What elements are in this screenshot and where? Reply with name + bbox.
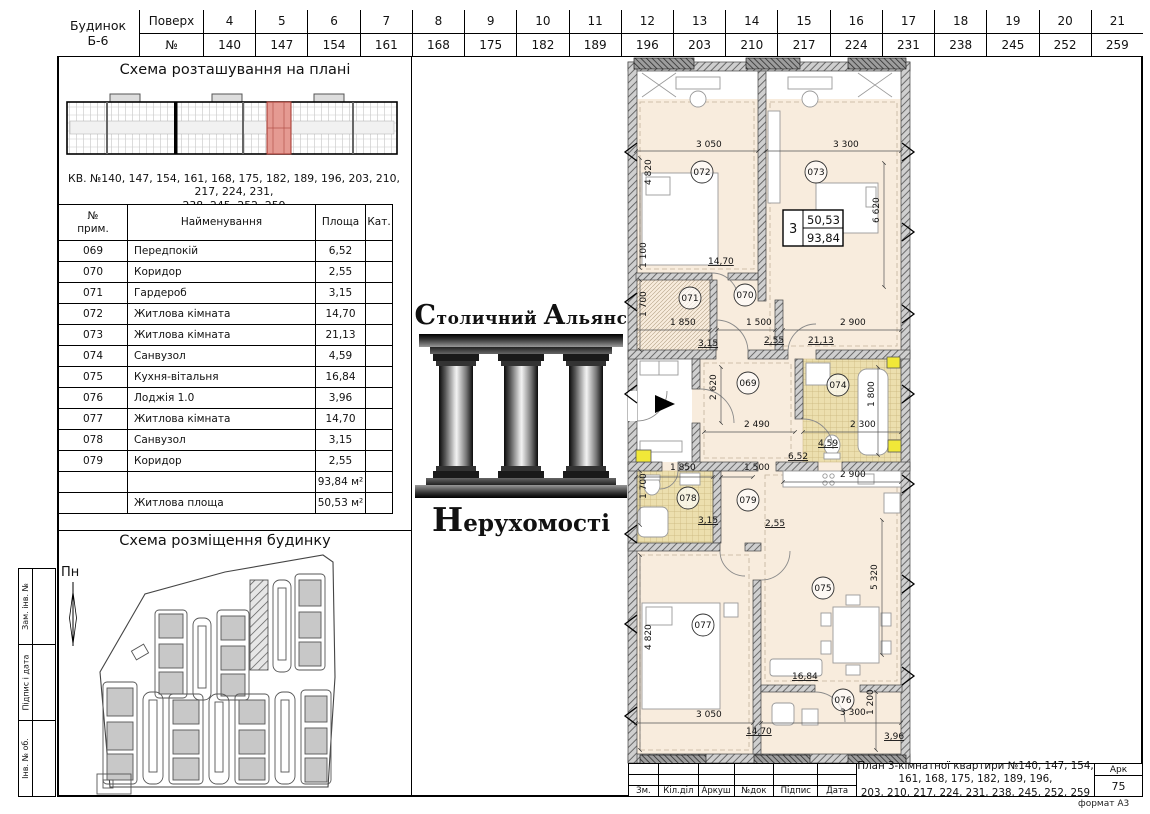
floor-value: 15 xyxy=(778,10,829,34)
floor-value: 12 xyxy=(622,10,673,34)
room-area: 3,96 xyxy=(316,388,366,409)
building-code: Б-6 xyxy=(87,33,108,48)
room-category xyxy=(366,262,393,283)
room-name: Кухня-вітальня xyxy=(128,367,316,388)
room-number-label: 071 xyxy=(681,294,698,304)
plan-dimension-label: 3 050 xyxy=(696,710,722,720)
room-number: 071 xyxy=(59,283,128,304)
room-row: 071 Гардероб 3,15 xyxy=(59,283,393,304)
room-row: 076 Лоджія 1.0 3,96 xyxy=(59,388,393,409)
floor-value: 6 xyxy=(308,10,359,34)
floor-value: 20 xyxy=(1040,10,1091,34)
apartment-number: 175 xyxy=(465,34,516,57)
apartment-number: 252 xyxy=(1040,34,1091,57)
room-area: 4,59 xyxy=(316,346,366,367)
apartment-number: 140 xyxy=(204,34,255,57)
floor-value: 21 xyxy=(1092,10,1143,34)
col-header-cat: Кат. xyxy=(366,205,393,241)
floors-columns: 4 140 5 147 6 154 7 161 8 168 xyxy=(204,10,1143,56)
room-category xyxy=(366,388,393,409)
number-header: № xyxy=(140,34,203,57)
room-number: 075 xyxy=(59,367,128,388)
room-number-label: 079 xyxy=(739,496,756,506)
plan-dimension-label: 4 820 xyxy=(644,159,654,185)
plan-dimension-label: 1 850 xyxy=(670,318,696,328)
plan-dimension-label: 1 500 xyxy=(746,318,772,328)
total-area-row: 93,84 м² xyxy=(59,472,393,493)
strip-cell: Підпис і дата xyxy=(19,645,55,721)
title-block: Зм. Кіл.діл Аркуш №док Підпис Дата План … xyxy=(628,763,1143,797)
floor-column: 8 168 xyxy=(413,10,465,56)
apartment-number: 224 xyxy=(831,34,882,57)
room-area: 6,52 xyxy=(316,241,366,262)
room-name: Санвузол xyxy=(128,346,316,367)
living-area-row: Житлова площа 50,53 м² xyxy=(59,493,393,514)
apartment-number: 168 xyxy=(413,34,464,57)
plan-dimension-label: 2 620 xyxy=(709,374,719,400)
floor-value: 17 xyxy=(883,10,934,34)
plan-dimension-label: 5 320 xyxy=(870,564,880,590)
plan-dimension-label: 1 850 xyxy=(670,463,696,473)
floor-value: 5 xyxy=(256,10,307,34)
room-number-label: 073 xyxy=(807,168,824,178)
sheet-number-cell: Арк 75 xyxy=(1095,764,1142,796)
site-scheme-title: Схема розміщення будинку xyxy=(70,533,380,549)
plan-dimension-label: 1 700 xyxy=(639,291,649,317)
apartments-note-line1: КВ. №140, 147, 154, 161, 168, 175, 182, … xyxy=(58,172,410,199)
floor-column: 5 147 xyxy=(256,10,308,56)
tb-col-label: Підпис xyxy=(774,786,817,796)
plan-area-label: 6,52 xyxy=(788,452,808,462)
apartment-number: 196 xyxy=(622,34,673,57)
apartment-number: 189 xyxy=(570,34,621,57)
room-name: Житлова кімната xyxy=(128,409,316,430)
floor-column: 9 175 xyxy=(465,10,517,56)
floor-column: 14 210 xyxy=(726,10,778,56)
plan-area-label: 16,84 xyxy=(792,672,818,682)
room-area: 21,13 xyxy=(316,325,366,346)
plan-dimension-label: 2 300 xyxy=(850,420,876,430)
strip-cell: Зам. інв. № xyxy=(19,569,55,645)
room-number: 078 xyxy=(59,430,128,451)
room-category xyxy=(366,430,393,451)
floor-value: 7 xyxy=(361,10,412,34)
room-area: 2,55 xyxy=(316,451,366,472)
logo-top-slab xyxy=(419,334,623,347)
room-number: 079 xyxy=(59,451,128,472)
apartment-number: 210 xyxy=(726,34,777,57)
apartment-number: 203 xyxy=(674,34,725,57)
sheet-header: Арк xyxy=(1095,764,1142,776)
strip-label: Підпис і дата xyxy=(21,655,30,711)
room-name: Лоджія 1.0 xyxy=(128,388,316,409)
room-category xyxy=(366,451,393,472)
drawing-title: План 3-кімнатної квартири №140, 147, 154… xyxy=(857,764,1095,796)
plan-dimension-label: 4 820 xyxy=(644,624,654,650)
apartment-floor-plan: 3 50,53 93,84 06907007107207307407507607… xyxy=(620,55,920,774)
room-number-label: 072 xyxy=(693,168,710,178)
room-row: 072 Житлова кімната 14,70 xyxy=(59,304,393,325)
apartment-info-badge: 3 50,53 93,84 xyxy=(783,210,843,246)
apartment-number: 245 xyxy=(987,34,1038,57)
plan-dimension-label: 3 300 xyxy=(833,140,859,150)
room-number-label: 078 xyxy=(679,494,696,504)
floor-column: 13 203 xyxy=(674,10,726,56)
plan-area-label: 3,96 xyxy=(884,732,904,742)
tb-col-label: Зм. xyxy=(629,786,658,796)
room-number-label: 075 xyxy=(814,584,831,594)
plan-dimension-label: 2 490 xyxy=(744,420,770,430)
floor-column: 6 154 xyxy=(308,10,360,56)
apartment-number: 217 xyxy=(778,34,829,57)
plan-dimension-label: 1 700 xyxy=(639,473,649,499)
floor-column: 18 238 xyxy=(935,10,987,56)
plan-dimension-label: 1 100 xyxy=(639,242,649,268)
plan-area-label: 3,15 xyxy=(698,339,718,349)
plan-area-label: 14,70 xyxy=(746,727,772,737)
strip-cell: Інв. № об. xyxy=(19,721,55,796)
room-number: 077 xyxy=(59,409,128,430)
total-area-value: 93,84 м² xyxy=(316,472,366,493)
floor-value: 10 xyxy=(517,10,568,34)
floor-header: Поверх xyxy=(140,10,203,34)
floor-column: 17 231 xyxy=(883,10,935,56)
living-area-value: 50,53 м² xyxy=(316,493,366,514)
floor-value: 8 xyxy=(413,10,464,34)
side-attribute-strip: Зам. інв. № Підпис і дата Інв. № об. xyxy=(18,568,56,797)
room-number-label: 076 xyxy=(834,696,851,706)
badge-living-area: 50,53 xyxy=(807,213,840,227)
room-row: 077 Житлова кімната 14,70 xyxy=(59,409,393,430)
strip-label: Інв. № об. xyxy=(21,738,30,779)
room-row: 074 Санвузол 4,59 xyxy=(59,346,393,367)
room-row: 078 Санвузол 3,15 xyxy=(59,430,393,451)
room-number-label: 074 xyxy=(829,381,846,391)
apartment-number: 154 xyxy=(308,34,359,57)
room-row: 079 Коридор 2,55 xyxy=(59,451,393,472)
tb-col-label: Кіл.діл xyxy=(659,786,698,796)
apartment-number: 182 xyxy=(517,34,568,57)
location-scheme-title: Схема розташування на плані xyxy=(60,62,410,78)
format-label: формат А3 xyxy=(1078,799,1129,809)
plan-area-label: 2,55 xyxy=(764,336,784,346)
room-row: 073 Житлова кімната 21,13 xyxy=(59,325,393,346)
logo-line2: Нерухомості xyxy=(413,500,629,539)
floor-column: 21 259 xyxy=(1092,10,1143,56)
logo-columns-icon xyxy=(433,354,609,478)
plan-dimension-label: 3 050 xyxy=(696,140,722,150)
room-name: Житлова кімната xyxy=(128,304,316,325)
room-name: Житлова кімната xyxy=(128,325,316,346)
tb-col-label: Аркуш xyxy=(699,786,734,796)
logo-bottom-slab xyxy=(415,485,627,498)
room-category xyxy=(366,325,393,346)
floor-value: 13 xyxy=(674,10,725,34)
room-name: Коридор xyxy=(128,451,316,472)
room-row: 069 Передпокій 6,52 xyxy=(59,241,393,262)
vertical-divider xyxy=(411,57,412,797)
plan-dimension-label: 1 800 xyxy=(867,381,877,407)
plan-dimension-label: 1 500 xyxy=(744,463,770,473)
floor-column: 12 196 xyxy=(622,10,674,56)
floor-column: 19 245 xyxy=(987,10,1039,56)
col-header-name: Найменування xyxy=(128,205,316,241)
room-number: 074 xyxy=(59,346,128,367)
apartment-number: 161 xyxy=(361,34,412,57)
horizontal-divider xyxy=(57,530,412,531)
plan-dimension-label: 1 200 xyxy=(866,689,876,715)
room-category xyxy=(366,409,393,430)
north-label: Пн xyxy=(61,565,79,580)
plan-area-label: 14,70 xyxy=(708,257,734,267)
floor-column: 4 140 xyxy=(204,10,256,56)
floor-value: 4 xyxy=(204,10,255,34)
room-area: 14,70 xyxy=(316,304,366,325)
floors-table: Будинок Б-6 Поверх № 4 140 5 147 6 154 7 xyxy=(57,10,1143,57)
room-number: 073 xyxy=(59,325,128,346)
room-area: 3,15 xyxy=(316,430,366,451)
apartment-number: 231 xyxy=(883,34,934,57)
title-block-grid: Зм. Кіл.діл Аркуш №док Підпис Дата xyxy=(629,764,857,796)
floor-column: 7 161 xyxy=(361,10,413,56)
tb-col-label: №док xyxy=(735,786,774,796)
living-area-label: Житлова площа xyxy=(128,493,316,514)
floors-header-column: Поверх № xyxy=(140,10,204,56)
strip-label: Зам. інв. № xyxy=(21,583,30,630)
room-name: Коридор xyxy=(128,262,316,283)
apartment-number: 147 xyxy=(256,34,307,57)
floor-column: 15 217 xyxy=(778,10,830,56)
room-category xyxy=(366,304,393,325)
floor-column: 16 224 xyxy=(831,10,883,56)
sheet-number: 75 xyxy=(1095,776,1142,796)
room-name: Гардероб xyxy=(128,283,316,304)
room-number: 076 xyxy=(59,388,128,409)
badge-room-count: 3 xyxy=(789,222,797,237)
room-number: 072 xyxy=(59,304,128,325)
room-category xyxy=(366,367,393,388)
company-logo: Столичний Альянс Нерухомості xyxy=(413,300,629,539)
room-row: 075 Кухня-вітальня 16,84 xyxy=(59,367,393,388)
floor-value: 19 xyxy=(987,10,1038,34)
plan-area-label: 4,59 xyxy=(818,439,838,449)
north-arrow-icon xyxy=(70,582,77,646)
plan-dimension-label: 3 300 xyxy=(840,708,866,718)
room-area: 2,55 xyxy=(316,262,366,283)
apartment-number: 259 xyxy=(1092,34,1143,57)
col-header-num: №прим. xyxy=(59,205,128,241)
room-row: 070 Коридор 2,55 xyxy=(59,262,393,283)
subject-building xyxy=(250,580,268,670)
room-category xyxy=(366,346,393,367)
apartment-number: 238 xyxy=(935,34,986,57)
logo-line1: Столичний Альянс xyxy=(413,300,629,331)
plan-area-label: 21,13 xyxy=(808,336,834,346)
room-category xyxy=(366,241,393,262)
room-number: 069 xyxy=(59,241,128,262)
room-number-label: 070 xyxy=(736,291,753,301)
room-area: 3,15 xyxy=(316,283,366,304)
room-number: 070 xyxy=(59,262,128,283)
floor-value: 16 xyxy=(831,10,882,34)
plan-dimension-label: 2 900 xyxy=(840,318,866,328)
floor-value: 18 xyxy=(935,10,986,34)
plan-dimension-label: 2 900 xyxy=(840,470,866,480)
plan-area-label: 3,15 xyxy=(698,516,718,526)
tb-col-label: Дата xyxy=(818,786,856,796)
room-name: Санвузол xyxy=(128,430,316,451)
room-name: Передпокій xyxy=(128,241,316,262)
building-cell: Будинок Б-6 xyxy=(57,10,140,56)
badge-total-area: 93,84 xyxy=(807,231,840,245)
floor-column: 10 182 xyxy=(517,10,569,56)
site-plan: Пн xyxy=(45,552,355,797)
floor-value: 11 xyxy=(570,10,621,34)
building-label: Будинок xyxy=(70,18,126,33)
floor-column: 11 189 xyxy=(570,10,622,56)
col-header-area: Площа xyxy=(316,205,366,241)
building-locator-plan xyxy=(62,88,402,170)
floor-value: 14 xyxy=(726,10,777,34)
room-category xyxy=(366,283,393,304)
room-number-label: 077 xyxy=(694,621,711,631)
room-area: 16,84 xyxy=(316,367,366,388)
floor-value: 9 xyxy=(465,10,516,34)
plan-area-label: 2,55 xyxy=(765,519,785,529)
room-number-label: 069 xyxy=(739,379,756,389)
floor-column: 20 252 xyxy=(1040,10,1092,56)
room-area: 14,70 xyxy=(316,409,366,430)
rooms-table: №прим. Найменування Площа Кат. 069 Перед… xyxy=(58,204,393,514)
plan-dimension-label: 6 620 xyxy=(872,197,882,223)
